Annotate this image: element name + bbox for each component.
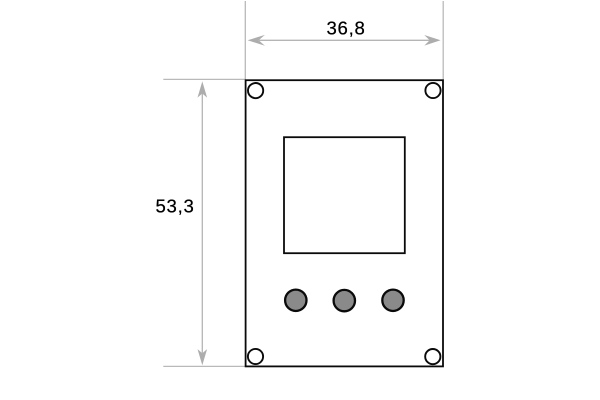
- svg-text:36,8: 36,8: [327, 17, 366, 38]
- svg-text:53,3: 53,3: [156, 195, 195, 216]
